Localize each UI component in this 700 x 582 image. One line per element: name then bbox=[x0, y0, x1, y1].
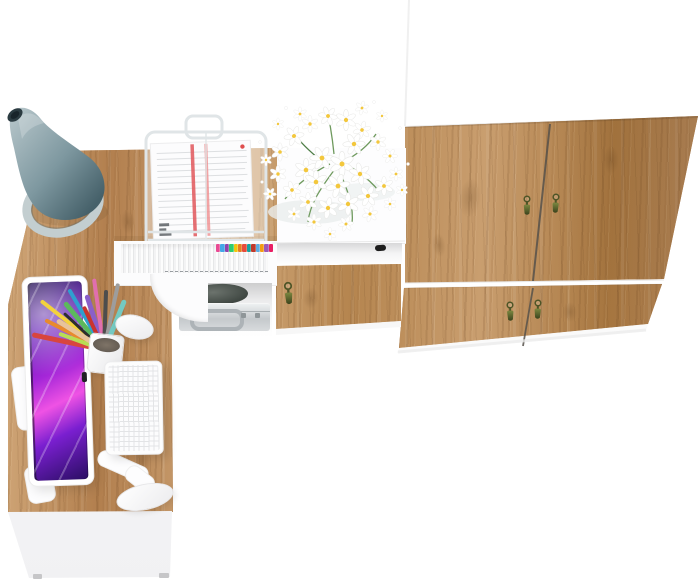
cabinet-top bbox=[272, 148, 406, 244]
briefcase-latch bbox=[241, 313, 246, 318]
pen-cup-opening bbox=[92, 337, 120, 354]
lamp-tip-opening bbox=[5, 105, 25, 124]
furniture-product-image bbox=[0, 0, 700, 582]
monitor-logo-dot bbox=[82, 372, 87, 382]
keyboard-keys bbox=[108, 365, 159, 452]
desk-foot bbox=[33, 574, 42, 579]
file-bottom-edges bbox=[165, 270, 268, 272]
file-tab bbox=[269, 244, 273, 252]
tray-handle bbox=[186, 116, 222, 138]
file-tab bbox=[251, 244, 255, 252]
desk-foot bbox=[159, 573, 169, 578]
briefcase-latch bbox=[255, 313, 260, 318]
file-tab bbox=[229, 244, 233, 252]
file-tabs bbox=[216, 244, 273, 252]
keyboard bbox=[104, 361, 164, 456]
lamp-highlight bbox=[18, 113, 44, 139]
lamp-tip-inner bbox=[9, 110, 21, 121]
wardrobe-top-left-edge bbox=[405, 0, 409, 126]
cabinet-niche bbox=[277, 243, 402, 266]
paper-red-dot bbox=[240, 144, 245, 149]
